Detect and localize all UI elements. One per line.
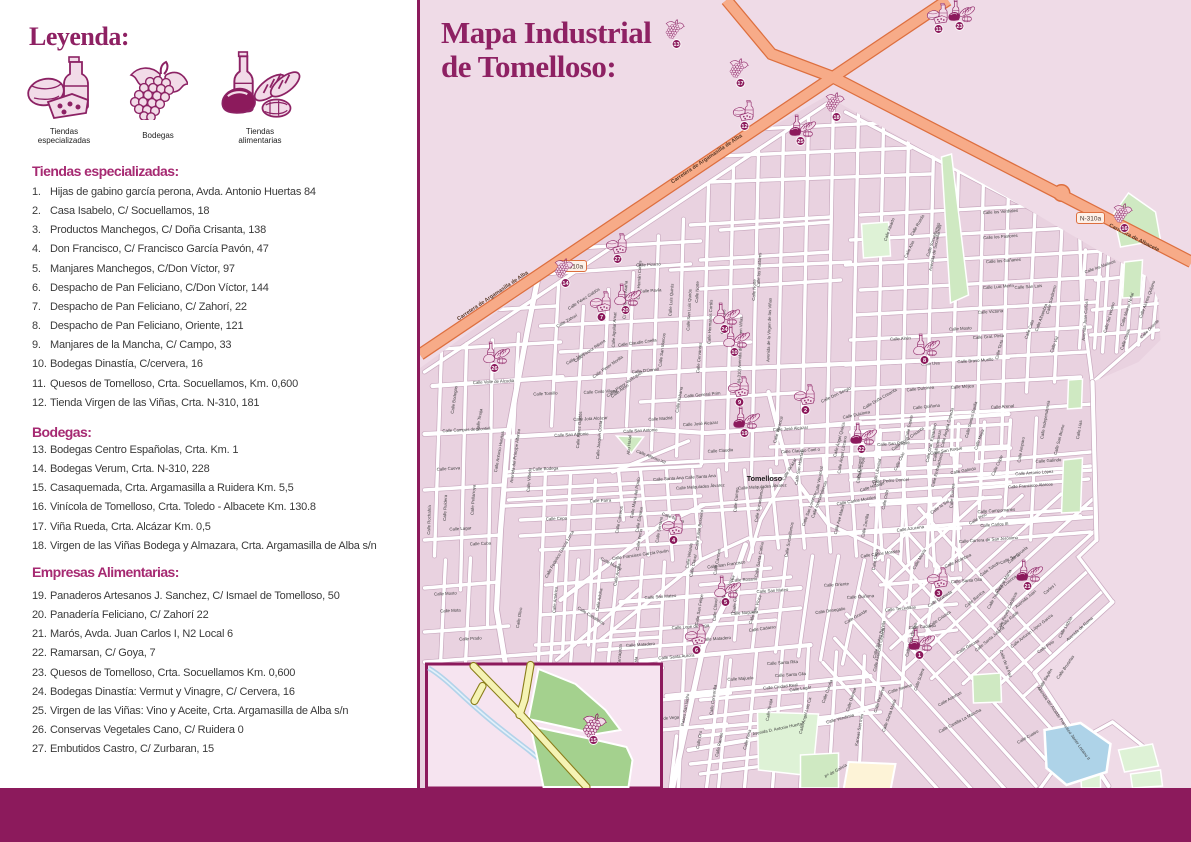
- svg-text:8: 8: [922, 358, 925, 364]
- svg-text:2: 2: [803, 408, 806, 414]
- svg-text:27: 27: [614, 257, 620, 263]
- svg-text:12: 12: [741, 124, 747, 130]
- svg-text:20: 20: [622, 308, 628, 314]
- svg-text:7: 7: [599, 315, 602, 321]
- svg-text:25: 25: [797, 139, 803, 145]
- svg-text:3: 3: [936, 591, 939, 597]
- svg-text:19: 19: [741, 431, 747, 437]
- svg-text:Calle Rochafría: Calle Rochafría: [425, 504, 431, 534]
- svg-text:N-310a: N-310a: [1079, 216, 1101, 223]
- svg-text:23: 23: [956, 24, 962, 30]
- svg-text:13: 13: [673, 42, 679, 48]
- svg-text:1: 1: [917, 653, 920, 659]
- svg-text:10: 10: [731, 350, 737, 356]
- svg-text:5: 5: [723, 600, 726, 606]
- svg-text:18: 18: [833, 115, 839, 121]
- svg-text:17: 17: [737, 81, 743, 87]
- svg-text:9: 9: [737, 400, 740, 406]
- svg-text:26: 26: [491, 366, 497, 372]
- svg-text:24: 24: [721, 327, 728, 333]
- svg-text:16: 16: [1121, 226, 1127, 232]
- svg-text:15: 15: [590, 738, 597, 744]
- svg-text:6: 6: [694, 648, 697, 654]
- svg-text:22: 22: [858, 447, 864, 453]
- svg-text:Tomelloso: Tomelloso: [746, 474, 782, 483]
- svg-text:11: 11: [935, 27, 941, 33]
- svg-text:14: 14: [562, 281, 569, 287]
- svg-text:21: 21: [1024, 584, 1030, 590]
